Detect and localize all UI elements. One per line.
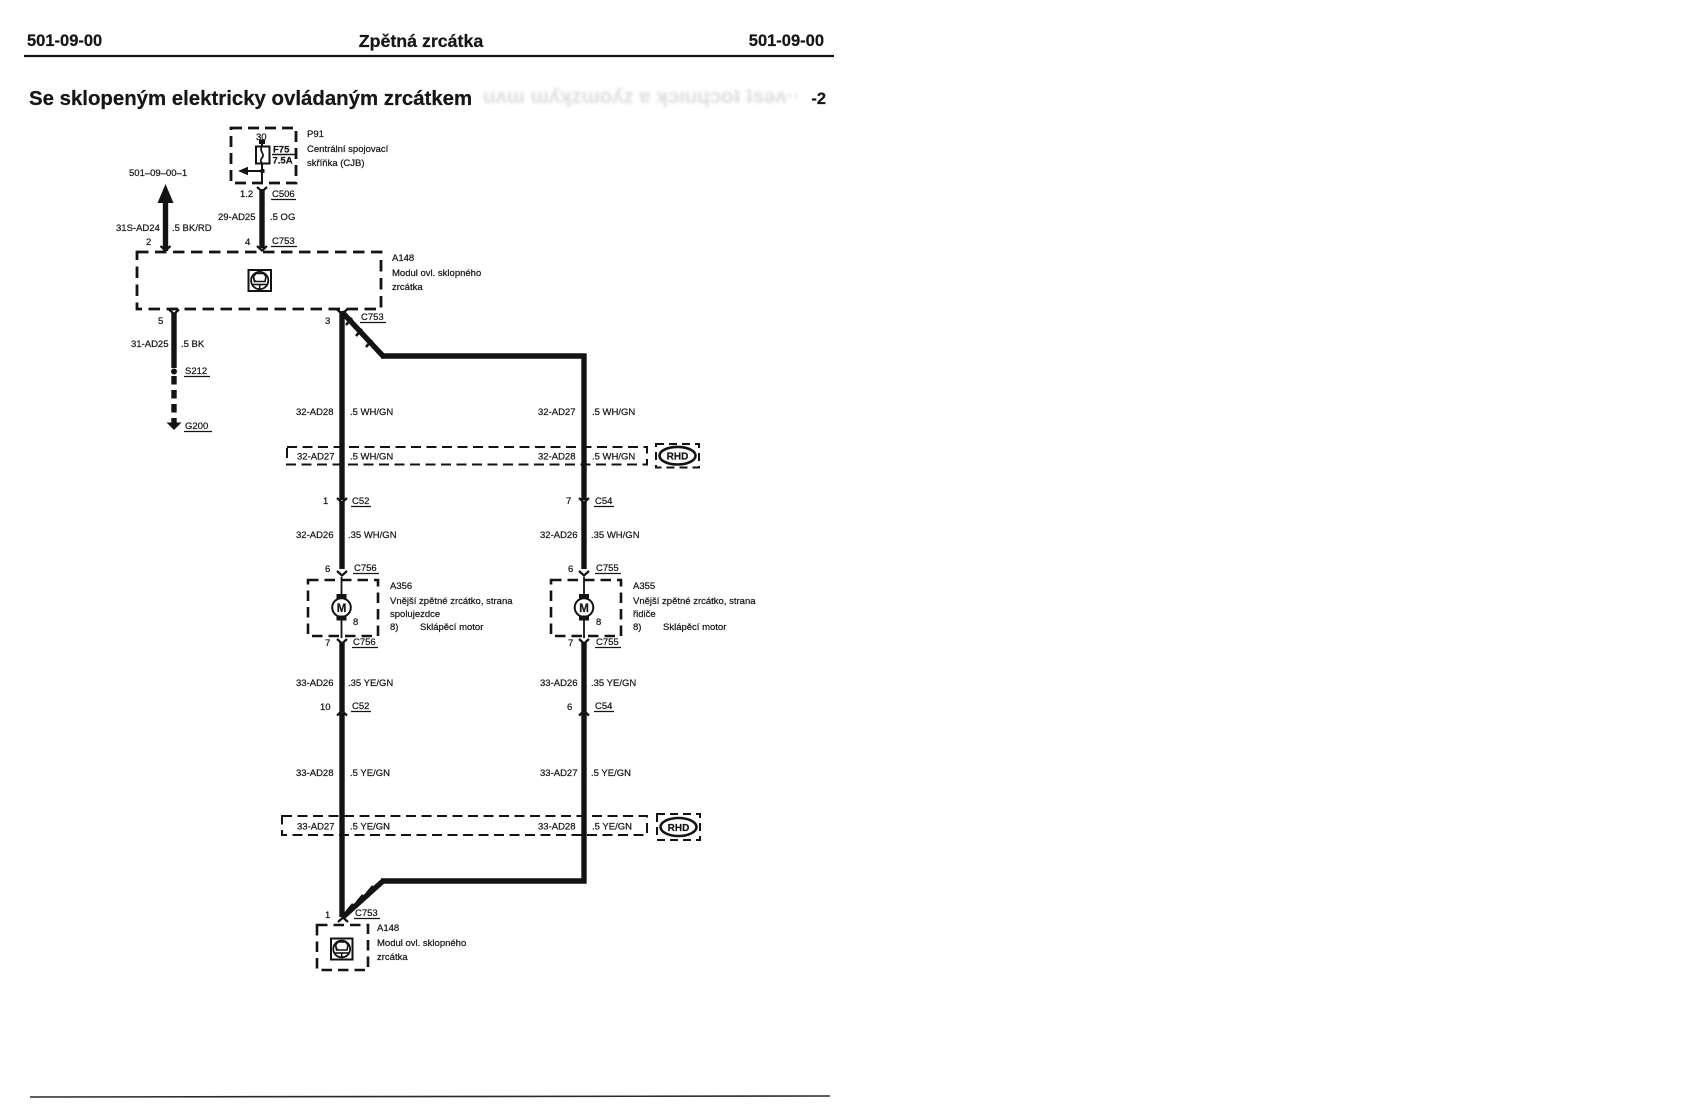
svg-text:Vnější zpětné zrcátko, strana: Vnější zpětné zrcátko, strana [633,596,756,607]
svg-text:C753: C753 [361,312,384,323]
svg-text:7: 7 [568,638,573,649]
svg-text:S212: S212 [185,366,207,377]
svg-text:32-AD28: 32-AD28 [296,407,334,418]
svg-text:.5 WH/GN: .5 WH/GN [350,452,393,463]
svg-text:skříňka (CJB): skříňka (CJB) [307,158,365,169]
svg-text:7: 7 [325,638,330,649]
svg-text:RHD: RHD [668,823,690,834]
svg-text:Modul ovl. sklopného: Modul ovl. sklopného [392,268,481,279]
svg-text:Zpětná zrcátka: Zpětná zrcátka [359,31,484,51]
svg-text:.35 WH/GN: .35 WH/GN [591,530,640,541]
svg-text:501–09–00–1: 501–09–00–1 [129,168,187,179]
svg-text:.5 OG: .5 OG [270,212,295,223]
svg-text:Vnější zpětné zrcátko, strana: Vnější zpětné zrcátko, strana [390,596,513,607]
svg-text:.5 BK: .5 BK [181,339,205,350]
svg-text:A148: A148 [377,923,399,934]
svg-text:.35 YE/GN: .35 YE/GN [591,678,636,689]
svg-text:501-09-00: 501-09-00 [749,32,824,50]
svg-text:33-AD28: 33-AD28 [296,768,334,779]
svg-text:8): 8) [633,622,641,633]
svg-text:10: 10 [320,702,331,713]
svg-text:Sklápěcí motor: Sklápěcí motor [420,622,483,633]
svg-text:.5 WH/GN: .5 WH/GN [350,407,393,418]
svg-text:6: 6 [325,564,330,575]
svg-text:C756: C756 [353,637,376,648]
svg-text:1: 1 [323,496,328,507]
svg-text:6: 6 [568,564,573,575]
svg-text:33-AD28: 33-AD28 [538,822,576,833]
svg-text:501-09-00: 501-09-00 [27,32,102,50]
svg-text:.5 WH/GN: .5 WH/GN [592,407,635,418]
svg-text:Centrální spojovací: Centrální spojovací [307,144,389,155]
svg-text:31-AD25: 31-AD25 [131,339,169,350]
svg-text:7.5A: 7.5A [273,156,293,167]
svg-text:C52: C52 [352,701,369,712]
svg-text:32-AD26: 32-AD26 [296,530,334,541]
svg-text:29-AD25: 29-AD25 [218,212,256,223]
svg-text:A356: A356 [390,581,412,592]
svg-text:C753: C753 [272,236,295,247]
svg-text:.35 WH/GN: .35 WH/GN [348,530,397,541]
svg-text:C755: C755 [596,637,619,648]
svg-text:A148: A148 [392,253,414,264]
svg-text:2: 2 [146,237,151,248]
svg-text:.35 YE/GN: .35 YE/GN [348,678,393,689]
svg-text:C753: C753 [355,908,378,919]
svg-text:P91: P91 [307,129,324,140]
svg-text:.5 YE/GN: .5 YE/GN [592,822,632,833]
svg-text:Sklápěcí motor: Sklápěcí motor [663,622,726,633]
svg-text:zrcátka: zrcátka [392,282,423,293]
svg-text:3: 3 [325,316,330,327]
svg-text:C756: C756 [354,563,377,574]
svg-text:7: 7 [566,496,571,507]
svg-text:M: M [579,603,589,615]
svg-text:-2: -2 [811,90,826,108]
svg-text:M: M [337,603,347,615]
svg-text:6: 6 [567,702,572,713]
svg-text:uʌɯ ɯʎʞzɯoʎz ɐ ʞɔıuɥɔoʇ ʇsǝʌ··: uʌɯ ɯʎʞzɯoʎz ɐ ʞɔıuɥɔoʇ ʇsǝʌ·· [483,86,800,108]
svg-text:32-AD28: 32-AD28 [538,452,576,463]
svg-text:8: 8 [596,617,601,628]
svg-text:4: 4 [245,237,250,248]
svg-text:.5 WH/GN: .5 WH/GN [592,452,635,463]
svg-text:zrcátka: zrcátka [377,952,408,963]
svg-text:.5 YE/GN: .5 YE/GN [350,822,390,833]
svg-text:.5 YE/GN: .5 YE/GN [350,768,390,779]
svg-text:řidiče: řidiče [633,609,656,620]
svg-text:32-AD26: 32-AD26 [540,530,578,541]
svg-text:G200: G200 [185,421,208,432]
svg-text:C506: C506 [272,189,295,200]
svg-text:31S-AD24: 31S-AD24 [116,223,160,234]
svg-text:RHD: RHD [667,452,689,463]
svg-text:spolujezdce: spolujezdce [390,609,440,620]
svg-text:Modul ovl. sklopného: Modul ovl. sklopného [377,938,466,949]
svg-text:.5 BK/RD: .5 BK/RD [172,223,212,234]
svg-text:32-AD27: 32-AD27 [297,452,335,463]
svg-text:33-AD26: 33-AD26 [296,678,334,689]
svg-text:32-AD27: 32-AD27 [538,407,576,418]
svg-text:C54: C54 [595,701,612,712]
svg-text:C52: C52 [352,496,369,507]
svg-text:C755: C755 [596,563,619,574]
svg-text:8: 8 [353,617,358,628]
svg-text:33-AD27: 33-AD27 [540,768,578,779]
svg-text:33-AD26: 33-AD26 [540,678,578,689]
svg-text:1: 1 [325,910,330,921]
svg-text:5: 5 [158,316,163,327]
svg-text:33-AD27: 33-AD27 [297,822,335,833]
svg-text:C54: C54 [595,496,612,507]
svg-text:Se sklopeným elektricky ovláda: Se sklopeným elektricky ovládaným zrcátk… [29,88,472,110]
svg-text:8): 8) [390,622,398,633]
svg-text:.5 YE/GN: .5 YE/GN [591,768,631,779]
svg-text:1.2: 1.2 [240,189,253,200]
svg-text:A355: A355 [633,581,655,592]
